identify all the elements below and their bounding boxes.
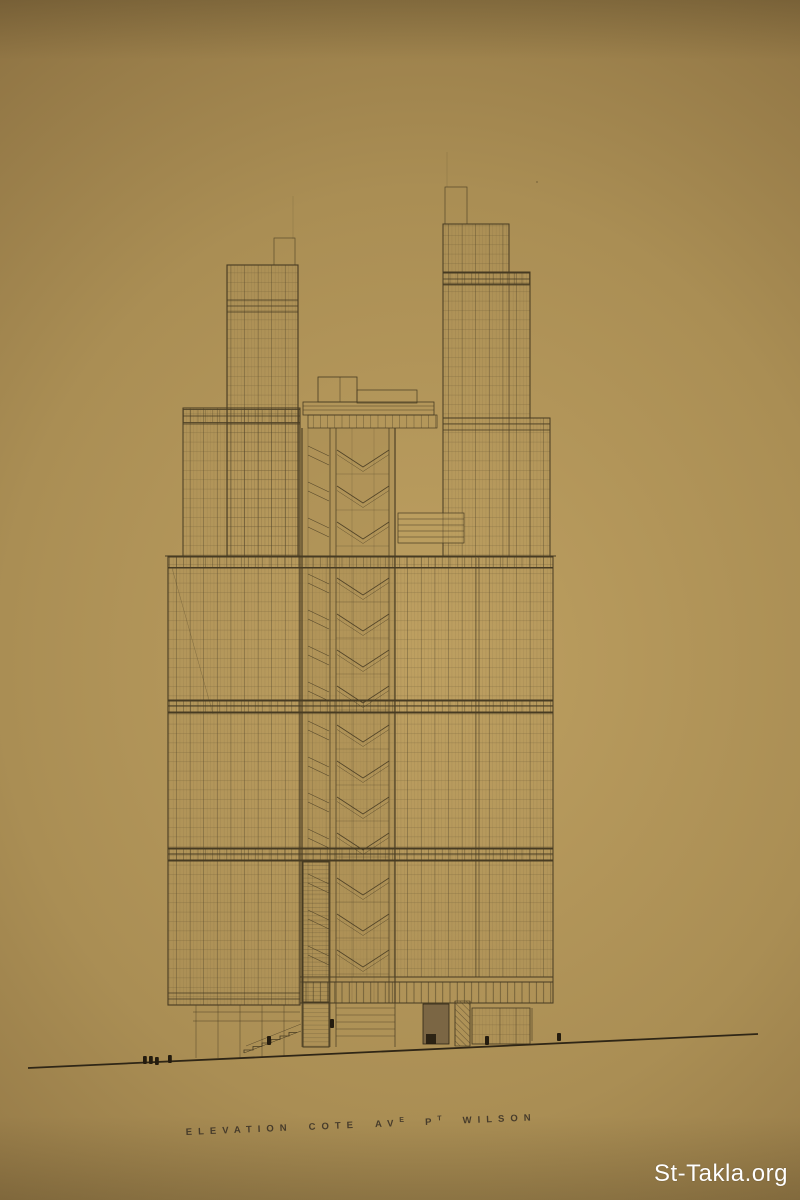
left-tower	[227, 265, 298, 556]
hatched-stair-strip	[455, 1001, 470, 1046]
base-podium	[193, 1001, 532, 1058]
entrance-stair	[244, 1024, 301, 1053]
watermark: St-Takla.org	[654, 1160, 788, 1188]
low-annex-block	[472, 1008, 532, 1044]
elevation-drawing	[0, 0, 800, 1200]
caption-word: COTE	[308, 1120, 359, 1133]
core-bridge-panel	[398, 513, 464, 543]
caption-word: AVE	[375, 1118, 410, 1130]
caption-word: PT	[425, 1116, 447, 1128]
ground-line	[28, 1034, 758, 1068]
photo-of-architectural-drawing: ELEVATIONCOTEAVEPTWILSON St-Takla.org	[0, 0, 800, 1200]
right-tower	[443, 224, 550, 556]
